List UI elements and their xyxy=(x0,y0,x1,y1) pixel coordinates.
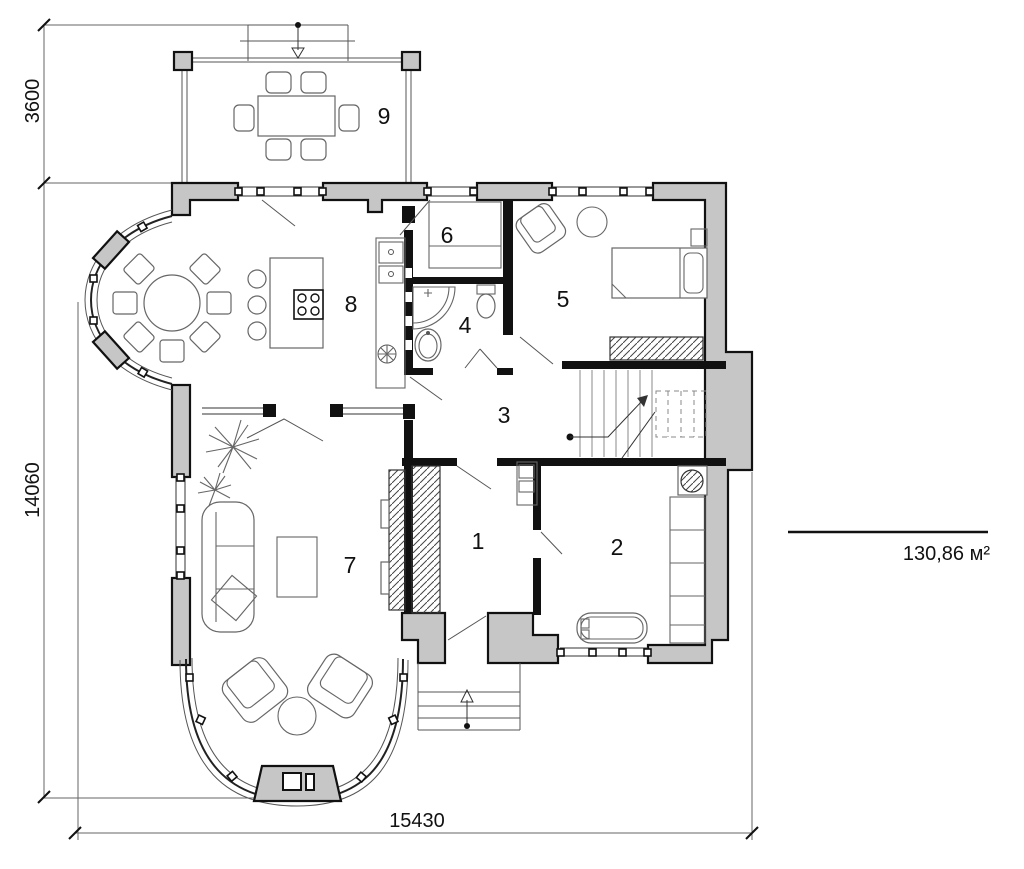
bar-stool xyxy=(248,322,266,340)
dimension-label-left-top: 3600 xyxy=(22,79,44,124)
shelf xyxy=(381,500,389,528)
kitchen-furniture xyxy=(113,238,405,388)
room-label-5: 5 xyxy=(557,286,570,312)
wall-porch-right xyxy=(488,613,558,663)
room6-bottom-wall xyxy=(413,277,510,284)
chair xyxy=(301,72,326,93)
bath-bottom-wall xyxy=(497,368,513,375)
armchair xyxy=(513,201,569,257)
hall-wardrobe xyxy=(412,466,440,613)
room-label-8: 8 xyxy=(345,291,358,317)
terrace-column xyxy=(174,52,192,70)
armchair xyxy=(304,650,377,721)
room-label-6: 6 xyxy=(441,222,454,248)
round-table xyxy=(278,697,316,735)
wall-left-lower xyxy=(172,578,190,665)
kitchen-sink xyxy=(379,242,403,283)
staircase xyxy=(567,370,707,458)
tv-unit xyxy=(389,470,405,610)
bathtub xyxy=(577,613,647,643)
washbasin xyxy=(415,329,441,361)
bed xyxy=(612,248,707,298)
chair xyxy=(234,105,254,131)
wall-post xyxy=(263,404,276,417)
room2-closet xyxy=(670,497,705,643)
round-dining-table xyxy=(144,275,200,331)
fireplace-firebox xyxy=(283,773,301,790)
room5-left-wall xyxy=(503,200,513,335)
room5-bottom-wall xyxy=(562,361,726,369)
entry-porch xyxy=(418,663,520,730)
room1-room2-wall xyxy=(533,558,541,615)
wall-left-upper xyxy=(172,385,190,477)
entry-point-dot xyxy=(295,22,301,28)
bar-stool xyxy=(248,296,266,314)
bathroom-fixtures xyxy=(413,285,495,361)
bath-bottom-wall xyxy=(413,368,433,375)
shelf xyxy=(381,562,389,594)
chair xyxy=(339,105,359,131)
wall-top-left xyxy=(172,183,238,215)
armchair xyxy=(218,654,291,727)
dimension-label-bottom: 15430 xyxy=(389,810,445,832)
bar-stool xyxy=(248,270,266,288)
room-label-9: 9 xyxy=(378,103,391,129)
porch-entry-dot xyxy=(464,723,470,729)
chair xyxy=(266,72,291,93)
side-table xyxy=(577,207,607,237)
living-room-furniture xyxy=(198,420,405,735)
wall-top-right xyxy=(477,183,552,200)
bay-pier xyxy=(93,231,129,268)
sofa xyxy=(202,502,254,632)
kitchen-counter xyxy=(376,238,405,388)
wall-post xyxy=(330,404,343,417)
wall-porch-left xyxy=(402,613,445,663)
bedroom-furniture xyxy=(513,201,707,360)
room-label-7: 7 xyxy=(344,552,357,578)
floor-plan-page: 3600 14060 15430 130,86 м² xyxy=(0,0,1024,869)
plant xyxy=(198,473,231,506)
area-label: 130,86 м² xyxy=(903,543,990,565)
fireplace-vent xyxy=(306,774,314,790)
terrace-dining-table xyxy=(258,96,335,136)
hob-symbol xyxy=(378,345,396,363)
chair xyxy=(301,139,326,160)
floor-plan-drawing: 3600 14060 15430 130,86 м² xyxy=(0,0,1024,869)
room-label-2: 2 xyxy=(611,534,624,560)
room-label-1: 1 xyxy=(472,528,485,554)
terrace-column xyxy=(402,52,420,70)
cooktop xyxy=(294,290,323,319)
washing-machine xyxy=(678,466,707,495)
room-label-3: 3 xyxy=(498,402,511,428)
room-label-4: 4 xyxy=(459,312,472,338)
hall-room-furniture xyxy=(412,462,707,643)
chair xyxy=(266,139,291,160)
wardrobe xyxy=(610,337,703,360)
wall-post xyxy=(403,404,415,419)
toilet xyxy=(477,285,495,318)
plant xyxy=(206,420,259,473)
living-bay-window xyxy=(180,658,408,806)
dimension-label-left-main: 14060 xyxy=(22,462,44,518)
coffee-table xyxy=(277,537,317,597)
area-callout: 130,86 м² xyxy=(788,532,990,565)
